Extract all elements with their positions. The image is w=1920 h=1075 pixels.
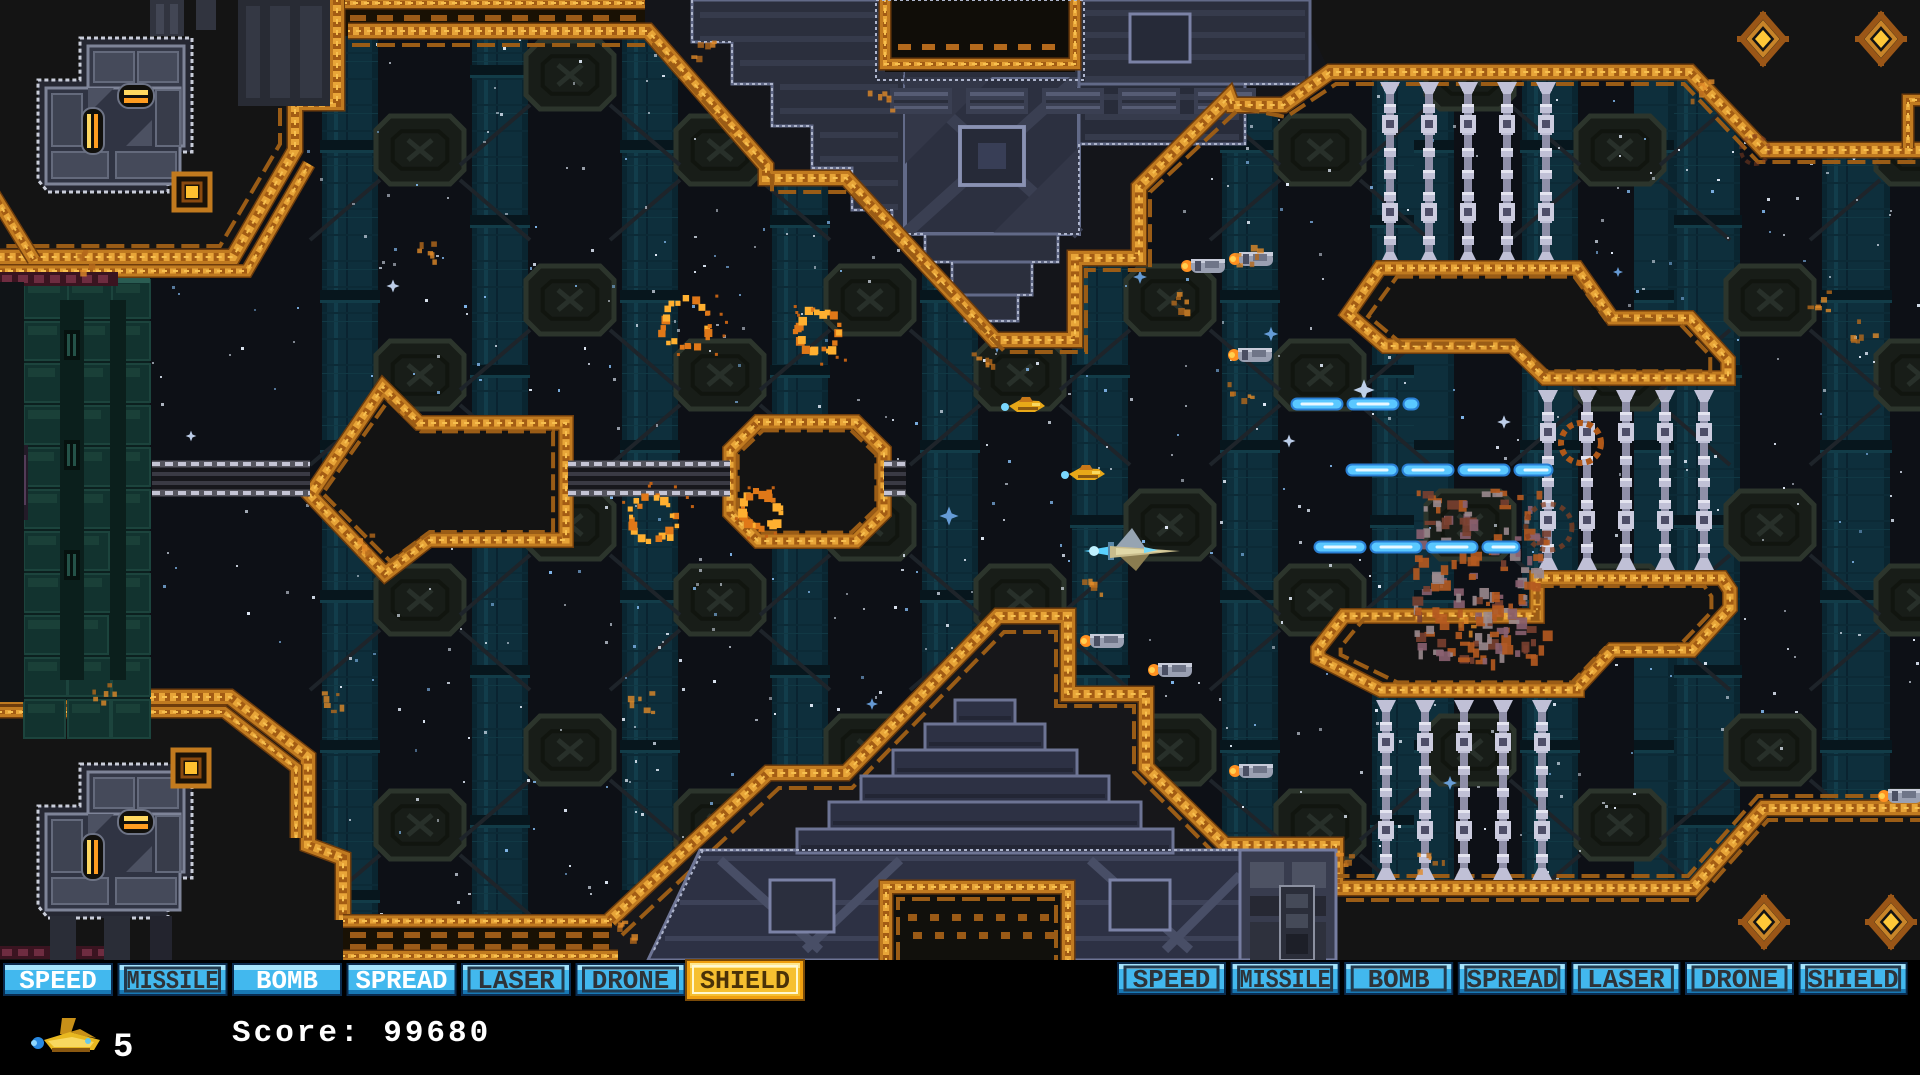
svg-text:BOMB: BOMB xyxy=(256,966,318,996)
svg-text:LASER: LASER xyxy=(477,966,555,996)
svg-text:SPREAD: SPREAD xyxy=(1467,965,1558,995)
svg-text:BOMB: BOMB xyxy=(1368,965,1430,995)
svg-text:SHIELD: SHIELD xyxy=(700,966,790,996)
svg-text:MISSILE: MISSILE xyxy=(127,966,219,996)
svg-text:MISSILE: MISSILE xyxy=(1240,965,1331,995)
svg-text:LASER: LASER xyxy=(1587,965,1665,995)
svg-text:DRONE: DRONE xyxy=(1701,965,1779,995)
svg-text:SPEED: SPEED xyxy=(1133,965,1211,995)
svg-text:SHIELD: SHIELD xyxy=(1808,965,1899,995)
svg-text:Score: 99680: Score: 99680 xyxy=(232,1016,491,1051)
svg-text:DRONE: DRONE xyxy=(592,966,670,996)
svg-text:SPEED: SPEED xyxy=(19,966,97,996)
svg-text:5: 5 xyxy=(113,1029,133,1067)
svg-text:SPREAD: SPREAD xyxy=(356,966,448,996)
